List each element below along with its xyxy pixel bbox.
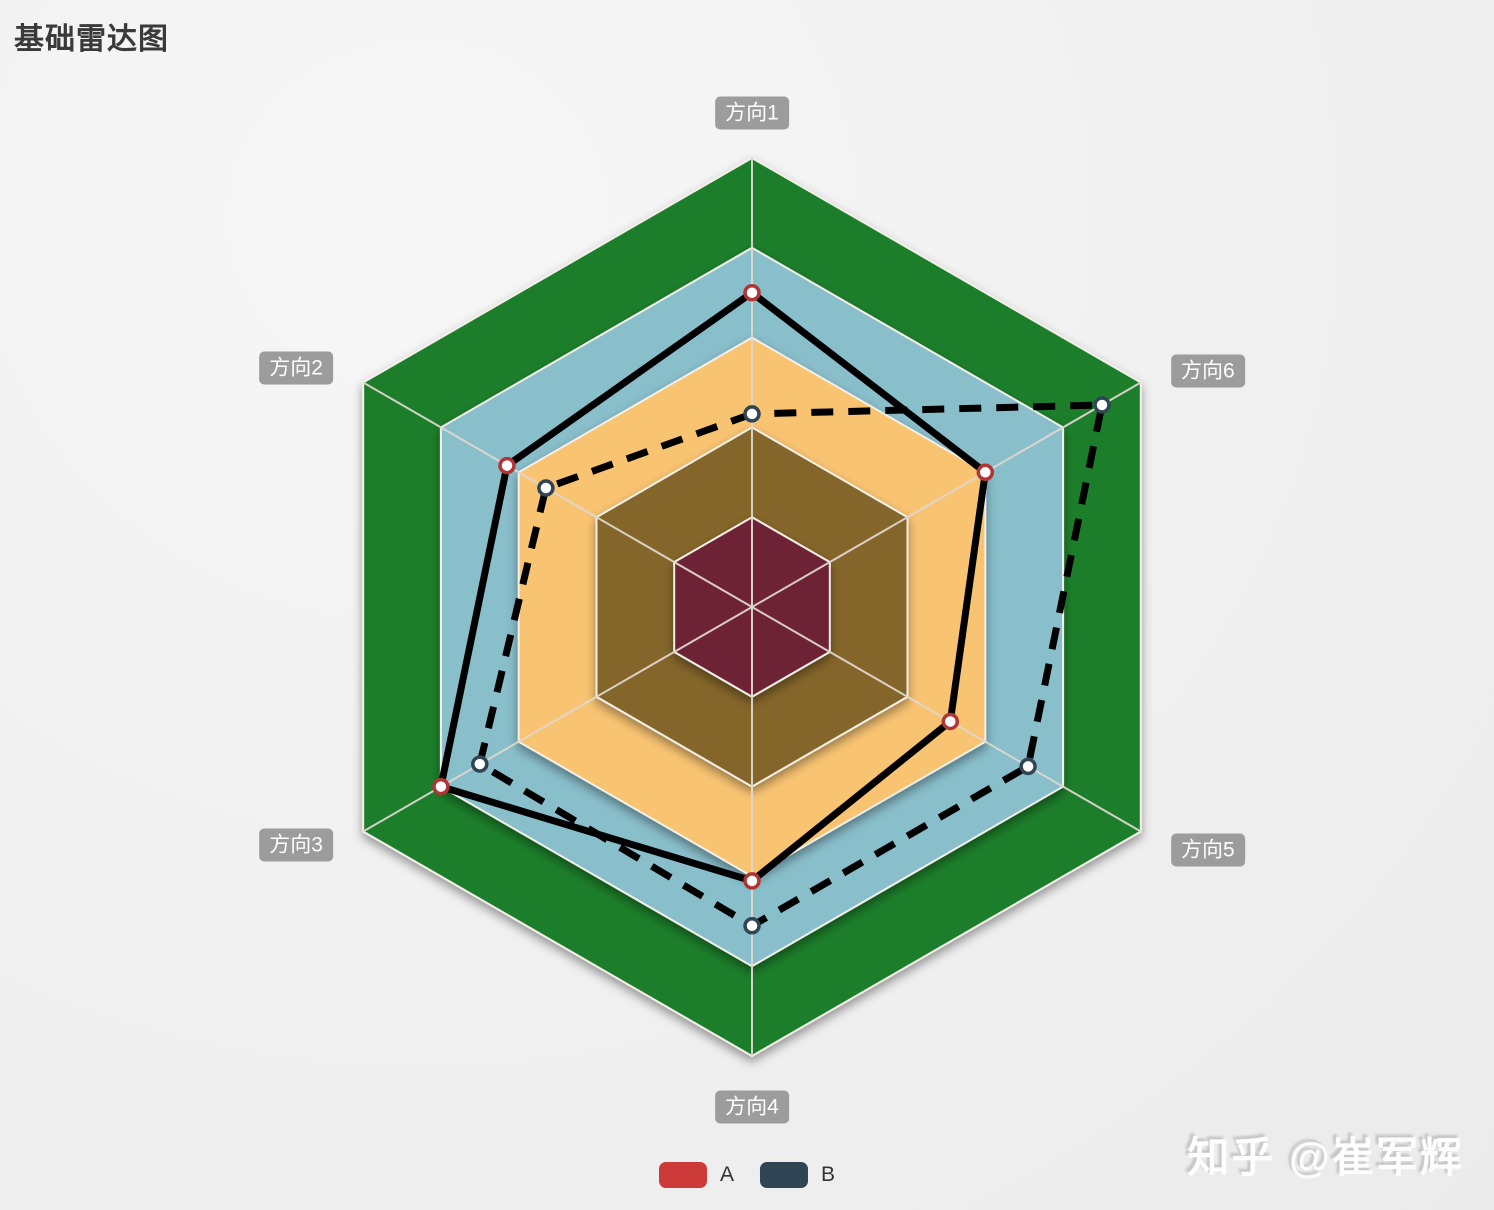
- data-point-B-方向1[interactable]: [745, 407, 759, 421]
- legend-item-B[interactable]: B: [760, 1162, 835, 1188]
- axis-label-方向6: 方向6: [1171, 354, 1245, 387]
- axis-label-方向2: 方向2: [259, 351, 333, 384]
- legend-item-A[interactable]: A: [659, 1162, 734, 1188]
- axis-label-方向1: 方向1: [715, 97, 789, 130]
- data-point-B-方向2[interactable]: [539, 481, 553, 495]
- axis-label-方向4: 方向4: [715, 1091, 789, 1124]
- legend-label-A: A: [720, 1163, 734, 1187]
- radar-chart-page: 基础雷达图 方向1方向2方向3方向4方向5方向6 AB 知乎 @崔军辉: [0, 0, 1494, 1210]
- axis-label-方向3: 方向3: [259, 828, 333, 861]
- data-point-A-方向3[interactable]: [434, 780, 448, 794]
- data-point-A-方向2[interactable]: [500, 459, 514, 473]
- data-point-A-方向6[interactable]: [978, 465, 992, 479]
- data-point-A-方向5[interactable]: [943, 715, 957, 729]
- legend: AB: [659, 1162, 835, 1188]
- data-point-A-方向4[interactable]: [745, 874, 759, 888]
- data-point-B-方向5[interactable]: [1021, 759, 1035, 773]
- data-point-A-方向1[interactable]: [745, 286, 759, 300]
- legend-swatch-A: [659, 1162, 707, 1188]
- radar-chart: [0, 0, 1494, 1210]
- legend-swatch-B: [760, 1162, 808, 1188]
- data-point-B-方向6[interactable]: [1095, 398, 1109, 412]
- data-point-B-方向4[interactable]: [745, 919, 759, 933]
- axis-label-方向5: 方向5: [1171, 833, 1245, 866]
- legend-label-B: B: [821, 1163, 835, 1187]
- data-point-B-方向3[interactable]: [473, 757, 487, 771]
